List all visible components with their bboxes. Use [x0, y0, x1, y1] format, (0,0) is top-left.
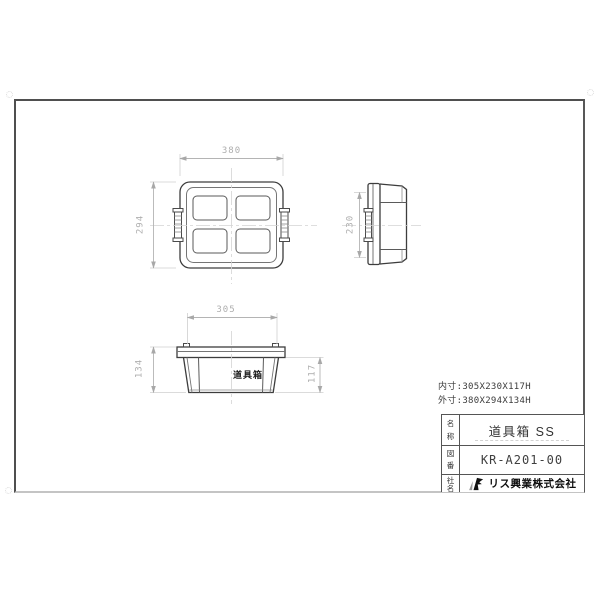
label-char: 名 [447, 420, 455, 428]
top-view-handle-right [280, 209, 290, 242]
side-view-handle [364, 209, 373, 242]
title-block: 名 称 道具箱 SS 図 番 KR-A201-00 社 名 [441, 414, 584, 492]
cad-linework [0, 0, 600, 600]
company-name: リス興業株式会社 [489, 476, 577, 491]
dim-top-height: 294 [136, 212, 147, 238]
top-view-handle-left [173, 209, 183, 242]
outer-size-note: 外寸:380X294X134H [438, 396, 531, 407]
dim-side-height: 230 [346, 212, 357, 238]
label-char: 名 [447, 485, 455, 493]
product-label: 道具箱 [225, 370, 271, 381]
label-char: 称 [447, 433, 455, 441]
dim-top-width: 380 [214, 146, 249, 157]
company-logo-icon [468, 477, 486, 491]
dim-front-width: 305 [208, 305, 244, 316]
product-name: 道具箱 SS [489, 421, 556, 440]
label-char: 番 [447, 462, 455, 470]
inner-size-note: 内寸:305X230X117H [438, 382, 531, 393]
number-row-value: KR-A201-00 [460, 446, 584, 474]
name-row-value: 道具箱 SS [460, 415, 584, 445]
drawing-sheet: 380 294 230 305 134 117 道具箱 内寸:305X230X1… [0, 0, 600, 600]
number-row-label: 図 番 [442, 446, 460, 474]
company-row-label: 社 名 [442, 475, 460, 492]
company-row-value: リス興業株式会社 [460, 475, 584, 492]
front-view-outline [177, 344, 285, 393]
dim-front-height-outer: 134 [135, 356, 146, 382]
name-underline [475, 440, 569, 441]
extension-lines [150, 154, 366, 393]
side-view-outline [368, 184, 407, 265]
drawing-number: KR-A201-00 [481, 453, 563, 467]
title-block-row-company: 社 名 リス興業株式会社 [442, 475, 584, 492]
name-row-label: 名 称 [442, 415, 460, 445]
title-block-row-number: 図 番 KR-A201-00 [442, 446, 584, 475]
title-block-row-name: 名 称 道具箱 SS [442, 415, 584, 446]
label-char: 図 [447, 450, 455, 458]
dim-front-height-inner: 117 [308, 361, 319, 387]
